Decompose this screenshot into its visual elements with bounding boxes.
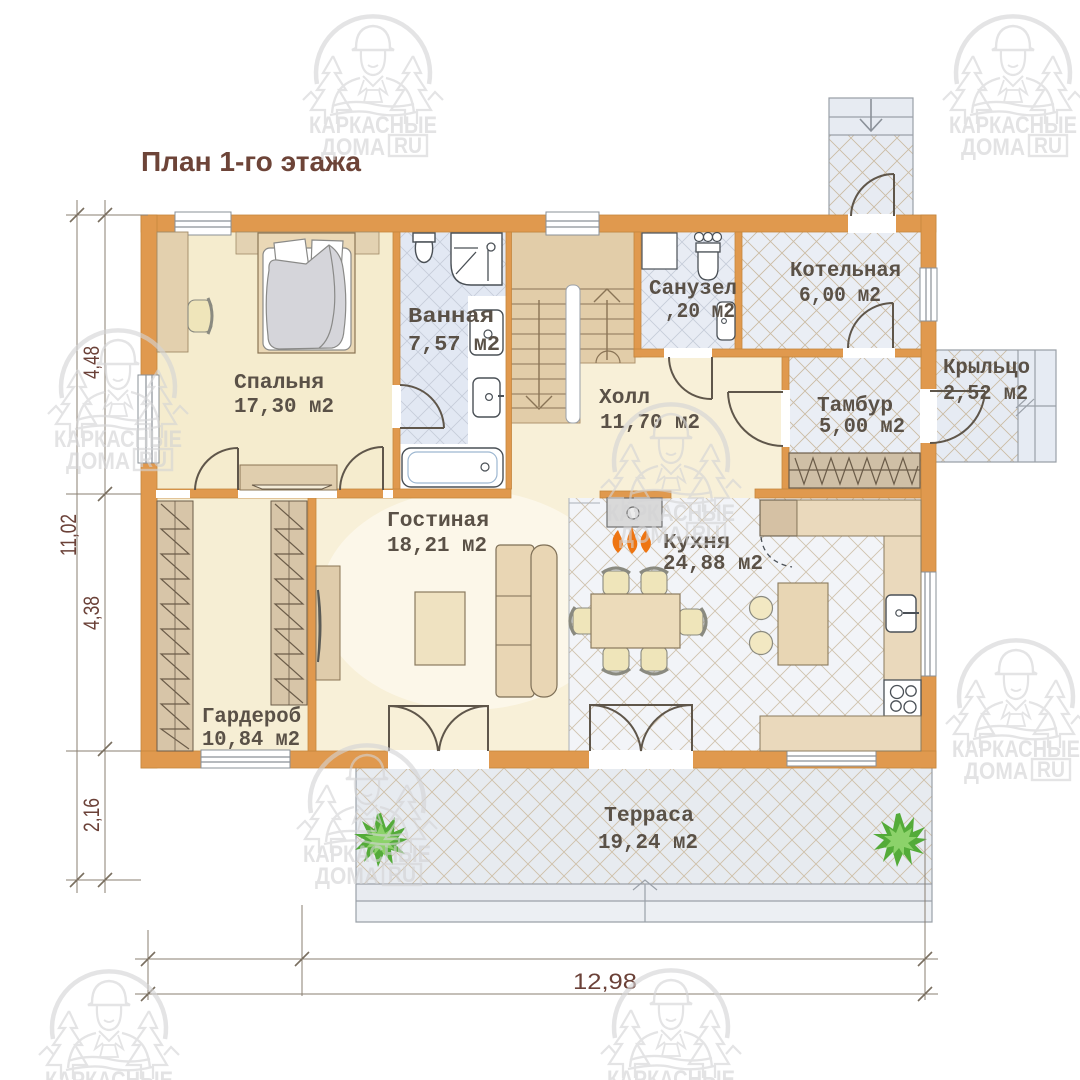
svg-text:Гардероб: Гардероб [202, 706, 301, 729]
svg-text:6,00 м2: 6,00 м2 [799, 285, 881, 308]
svg-text:Крыльцо: Крыльцо [943, 357, 1030, 380]
svg-text:Тамбур: Тамбур [817, 395, 893, 418]
svg-text:Гостиная: Гостиная [387, 510, 489, 533]
svg-text:2,16: 2,16 [79, 798, 104, 832]
svg-text:Терраса: Терраса [604, 805, 694, 828]
svg-text:2,52 м2: 2,52 м2 [943, 383, 1028, 406]
svg-text:Котельная: Котельная [790, 260, 901, 283]
svg-text:19,24 м2: 19,24 м2 [598, 832, 698, 855]
svg-text:4,38: 4,38 [79, 596, 104, 630]
svg-text:17,30 м2: 17,30 м2 [234, 396, 334, 419]
svg-text:10,84 м2: 10,84 м2 [202, 729, 300, 752]
svg-text:24,88 м2: 24,88 м2 [663, 553, 763, 576]
svg-text:Спальня: Спальня [234, 372, 324, 395]
svg-text:7,57 м2: 7,57 м2 [408, 334, 500, 357]
svg-text:5,00 м2: 5,00 м2 [819, 416, 905, 439]
svg-text:11,02: 11,02 [56, 514, 81, 556]
svg-text:18,21 м2: 18,21 м2 [387, 535, 487, 558]
svg-text:,20 м2: ,20 м2 [665, 301, 735, 324]
svg-text:Холл: Холл [599, 387, 650, 410]
svg-text:Санузел: Санузел [649, 278, 737, 301]
svg-text:Ванная: Ванная [408, 306, 494, 329]
